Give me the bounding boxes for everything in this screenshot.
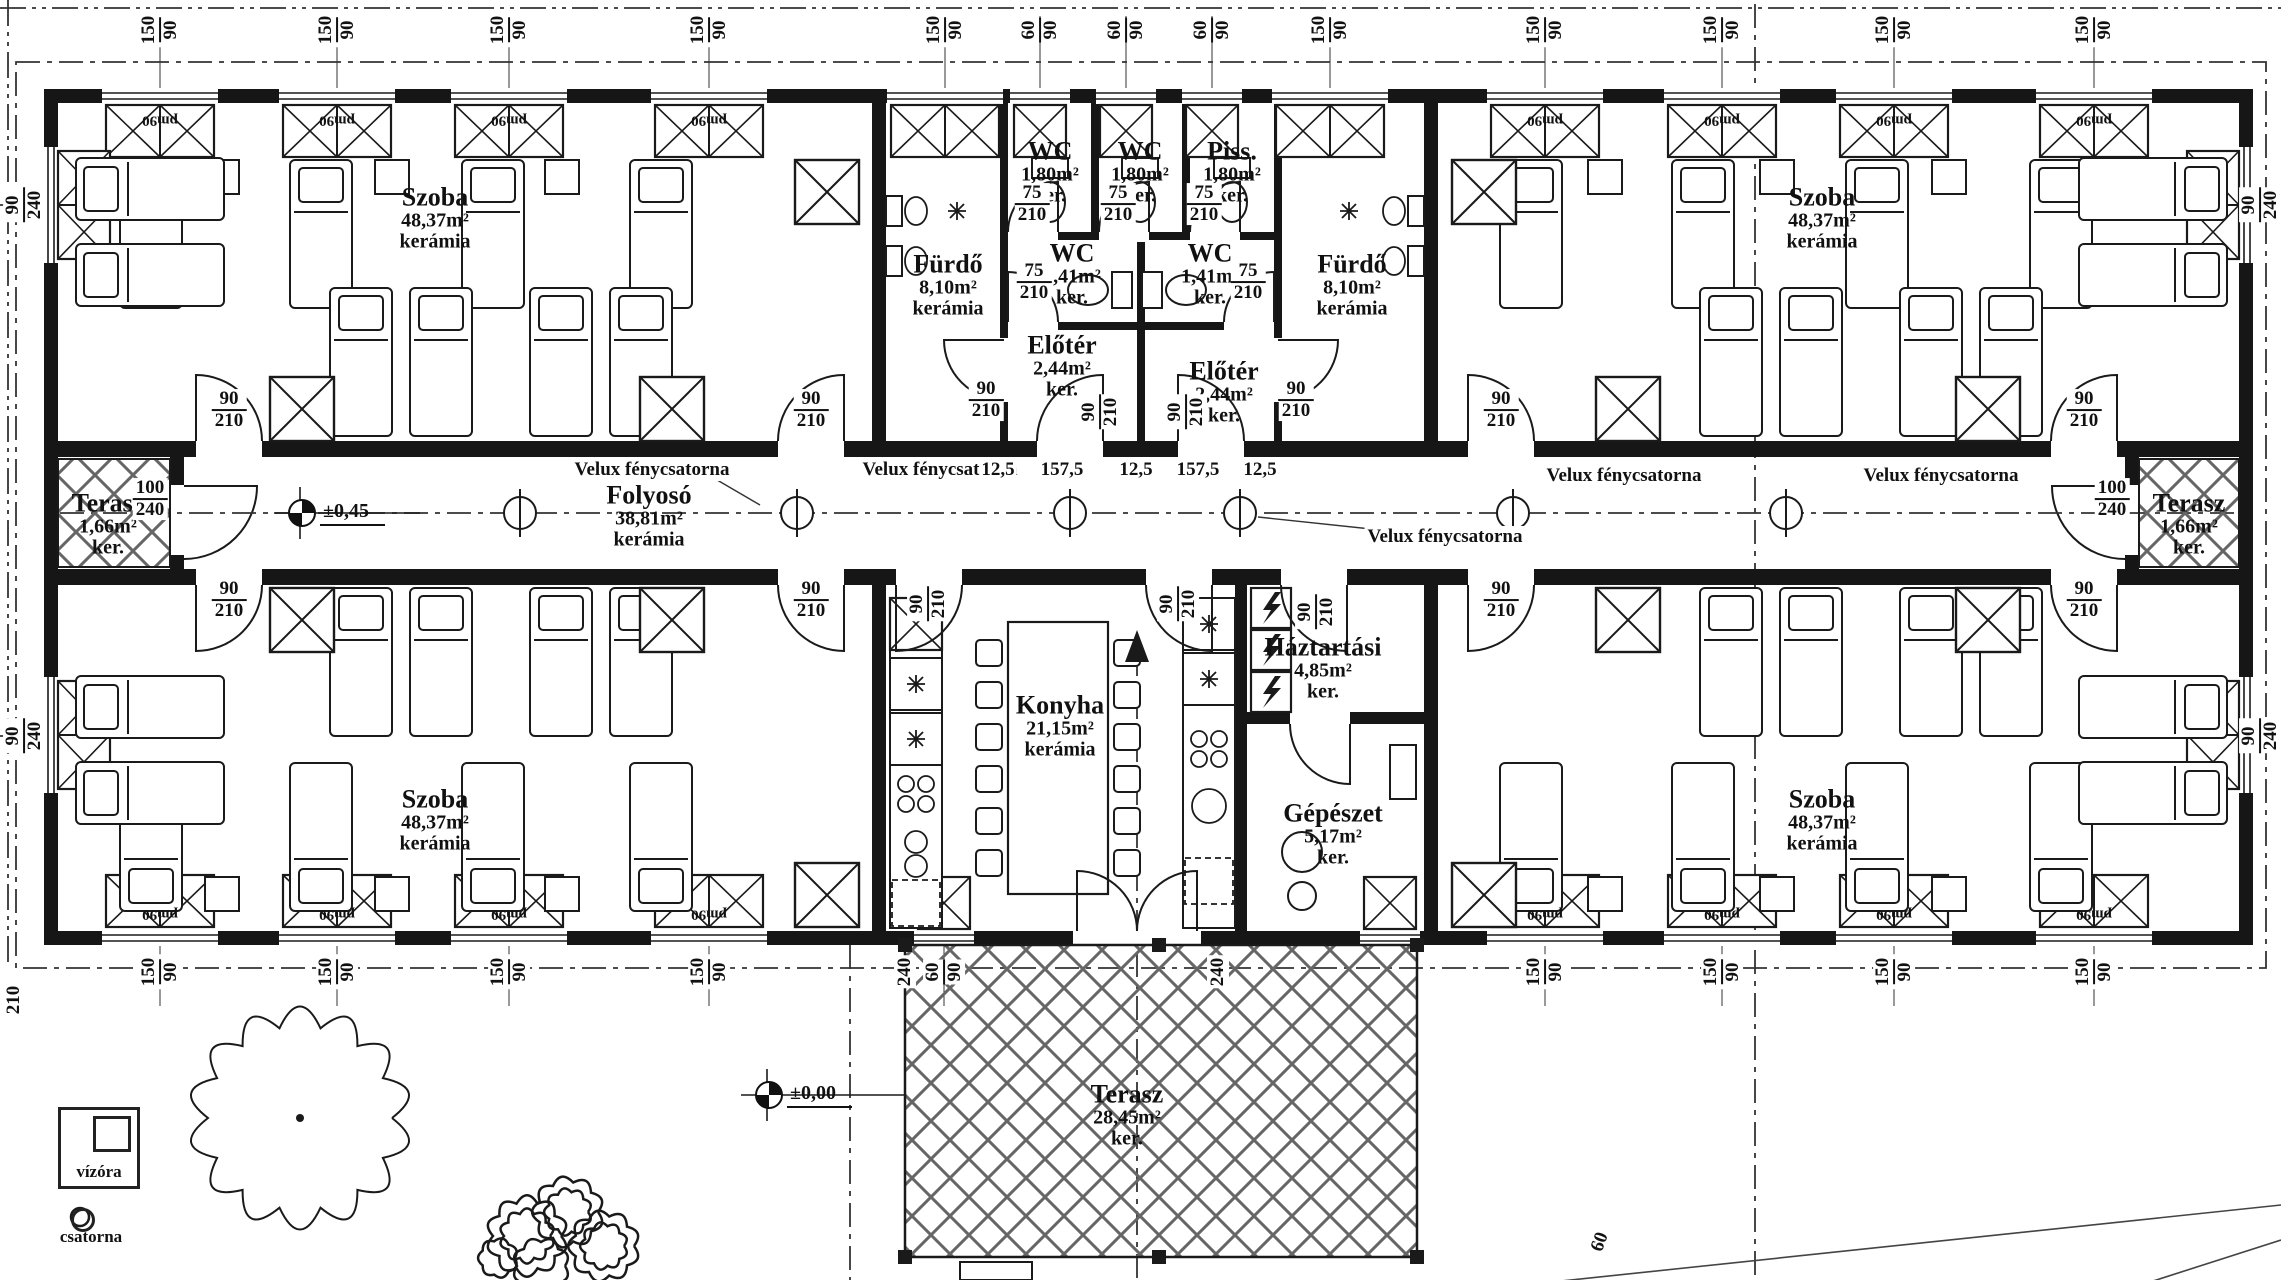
dimension-pair: 90 210 [2067,389,2102,431]
water-meter-inner-box [93,1116,131,1152]
dimension-pair-top: 100 [133,478,168,498]
room-name: Fürdő [1316,250,1387,277]
dimension-pair-top: 150 [1524,955,1544,990]
room-name: Terasz [1091,1080,1164,1107]
window-tag: pm90 [1527,906,1563,923]
dimension-pair-top: 90 [2072,579,2097,599]
dimension-pair: 150 90 [924,13,966,48]
dimension-pair-top: 150 [1701,955,1721,990]
dimension-pair-top: 90 [907,592,927,617]
room-label: Fürdő 8,10m² kerámia [1316,250,1387,319]
window-tag: pm90 [1527,112,1563,129]
dimension-label: 12,5 [1241,459,1278,481]
kitchen-furniture [890,598,1235,928]
window-tag: pm90 [1876,906,1912,923]
water-meter-label: vízóra [76,1162,121,1182]
vegetation [71,1006,638,1280]
room-finish: ker. [1265,682,1382,703]
window-tag: pm90 [1704,906,1740,923]
room-area: 1,66m² [2153,517,2226,538]
dimension-pair-top: 60 [1105,18,1125,43]
window-tag: pm90 [491,906,527,923]
dimension-pair-bottom: 90 [1125,18,1147,43]
room-area: 28,45m² [1091,1108,1164,1129]
room-label: Szoba 48,37m² kerámia [399,183,470,252]
level-marker: ±0,00 [755,1081,852,1109]
dimension-label: 12,5 [1117,459,1154,481]
dimension-pair-top: 90 [3,193,23,218]
room-label: Konyha 21,15m² kerámia [1016,691,1104,760]
dimension-pair-top: 90 [2239,193,2259,218]
site-boundary [1495,1205,2281,1280]
dimension-pair-top: 75 [1022,261,1047,281]
level-value: ±0,00 [787,1082,852,1108]
dimension-pair-top: 150 [488,13,508,48]
dimension-pair: 90 210 [794,389,829,431]
room-label: Szoba 48,37m² kerámia [399,785,470,854]
room-name: Előtér [1189,357,1258,384]
dimension-pair-top: 90 [217,389,242,409]
room-finish: kerámia [912,299,983,320]
room-name: Piss. [1203,137,1261,164]
dimension-pair-top: 100 [2095,478,2130,498]
room-name: Gépészet [1283,799,1383,826]
dimension-pair-bottom: 90 [1893,960,1915,985]
dimension-pair-bottom: 210 [1231,281,1266,303]
dimension-pair: 150 90 [1309,13,1351,48]
room-area: 5,17m² [1283,827,1383,848]
dimension-pair-top: 150 [688,955,708,990]
room-name: Konyha [1016,691,1104,718]
dimension-pair: 100 240 [2095,478,2130,520]
room-name: WC [1043,239,1101,266]
dimension-pair-top: 90 [1079,400,1099,425]
dimension-pair: 150 90 [488,13,530,48]
dimension-pair: 150 90 [316,955,358,990]
dimension-pair: 90 210 [794,579,829,621]
dimension-pair-bottom: 210 [1101,203,1136,225]
dimension-pair: 75 210 [1015,183,1050,225]
dimension-pair-bottom: 90 [1329,18,1351,43]
room-label: Terasz 1,66m² ker. [2153,489,2226,558]
room-name: Fürdő [912,250,983,277]
dimension-pair: 90 210 [2067,579,2102,621]
dimension-pair: 90 240 [3,188,45,223]
dimension-pair: 60 90 [1019,18,1061,43]
dimension-pair-bottom: 90 [708,18,730,43]
dimension-pair: 150 90 [316,13,358,48]
dimension-pair-bottom: 90 [2093,18,2115,43]
dimension-pair-top: 150 [2073,13,2093,48]
dimension-pair-top: 150 [688,13,708,48]
dimension-pair-top: 75 [1106,183,1131,203]
room-finish: ker. [72,538,145,559]
window-tag: pm90 [142,906,178,923]
room-finish: ker. [2153,538,2226,559]
dimension-pair-top: 60 [923,960,943,985]
room-area: 8,10m² [1316,278,1387,299]
dimension-pair-top: 150 [1309,13,1329,48]
dimension-pair-bottom: 240 [23,719,45,754]
dimension-pair: 90 210 [1279,379,1314,421]
room-area: 8,10m² [912,278,983,299]
dimension-pair-bottom: 210 [1099,395,1121,430]
room-finish: kerámia [606,530,691,551]
window-tag: pm90 [142,112,178,129]
dimension-pair-bottom: 210 [2067,409,2102,431]
room-name: Folyosó [606,481,691,508]
room-name: Terasz [2153,489,2226,516]
dimension-pair-bottom: 210 [1187,203,1222,225]
dimension-pair-top: 150 [1873,13,1893,48]
room-area: 38,81m² [606,509,691,530]
dimension-label: 12,5 [979,459,1016,481]
room-area: 2,44m² [1027,359,1096,380]
room-finish: kerámia [1016,740,1104,761]
dimension-pair-top: 150 [1701,13,1721,48]
velux-label: Velux fénycsatorna [1544,465,1705,487]
dimension-pair-bottom: 210 [1017,281,1052,303]
dimension-pair-top: 90 [799,389,824,409]
dimension-pair: 90 210 [1079,395,1121,430]
room-label: Szoba 48,37m² kerámia [1786,785,1857,854]
dimension-pair-top: 90 [1295,600,1315,625]
water-meter-symbol: vízóra [58,1107,140,1189]
room-area: 48,37m² [399,211,470,232]
room-label: Előtér 2,44m² ker. [1027,331,1096,400]
velux-label: Velux fénycsatorna [572,459,733,481]
dimension-pair-top: 90 [2072,389,2097,409]
room-finish: kerámia [1786,834,1857,855]
dimension-pair: 90 240 [2239,719,2281,754]
room-finish: ker. [1091,1129,1164,1150]
dimension-pair: 150 90 [1701,955,1743,990]
dimension-pair: 75 210 [1101,183,1136,225]
sewer-label: csatorna [60,1227,122,1247]
room-label: Terasz 28,45m² ker. [1091,1080,1164,1149]
dimension-pair-top: 150 [139,955,159,990]
floorplan-canvas: Szoba 48,37m² kerámia Szoba 48,37m² kerá… [0,0,2281,1280]
dimension-pair-bottom: 240 [2095,498,2130,520]
dimension-pair: 90 210 [1165,395,1207,430]
dimension-pair-bottom: 90 [1721,960,1743,985]
dimension-pair: 75 210 [1017,261,1052,303]
dimension-pair-top: 75 [1236,261,1261,281]
dimension-pair-bottom: 210 [969,399,1004,421]
dimension-label: 157,5 [1175,459,1222,481]
dimension-pair-bottom: 210 [2067,599,2102,621]
room-area: 48,37m² [1786,211,1857,232]
dimension-pair-top: 90 [799,579,824,599]
window-tag: pm90 [319,112,355,129]
room-name: Szoba [1786,785,1857,812]
dimension-pair: 150 90 [139,955,181,990]
dimension-pair: 150 90 [1524,13,1566,48]
dimension-pair: 90 210 [1295,595,1337,630]
dimension-pair: 90 210 [969,379,1004,421]
dimension-pair-bottom: 210 [1484,409,1519,431]
dimension-pair: 150 90 [1701,13,1743,48]
dimension-pair-bottom: 90 [336,960,358,985]
dimension-pair-top: 60 [1019,18,1039,43]
dimension-pair-top: 150 [316,13,336,48]
dimension-label: 240 [894,956,916,989]
dimension-pair-bottom: 90 [1721,18,1743,43]
dimension-label: 240 [1207,956,1229,989]
room-name: Előtér [1027,331,1096,358]
window-tag: pm90 [1876,112,1912,129]
dimension-pair-bottom: 90 [159,960,181,985]
dimension-pair-top: 90 [1157,592,1177,617]
dimension-pair-bottom: 90 [1544,18,1566,43]
room-finish: kerámia [1786,232,1857,253]
room-label: Háztartási 4,85m² ker. [1265,633,1382,702]
dimension-pair-bottom: 210 [1484,599,1519,621]
room-label: WC 1,41m² ker. [1043,239,1101,308]
dimension-pair: 90 210 [212,389,247,431]
room-finish: ker. [1043,288,1101,309]
room-area: 1,41m² [1043,267,1101,288]
dimension-pair: 90 210 [1484,389,1519,431]
dimension-pair-top: 90 [217,579,242,599]
dimension-pair: 90 240 [3,719,45,754]
dimension-pair: 60 90 [923,960,965,985]
dimension-pair-top: 90 [2239,724,2259,749]
dimension-pair: 150 90 [139,13,181,48]
dimension-pair-bottom: 90 [1211,18,1233,43]
dimension-pair-top: 90 [3,724,23,749]
room-name: WC [1021,137,1079,164]
dimension-pair-bottom: 90 [708,960,730,985]
dimension-pair-top: 150 [488,955,508,990]
dimension-pair-top: 60 [1191,18,1211,43]
window-tag: pm90 [2076,906,2112,923]
window-tag: pm90 [319,906,355,923]
dimension-pair: 60 90 [1191,18,1233,43]
dimension-pair: 60 90 [1105,18,1147,43]
room-name: Háztartási [1265,633,1382,660]
dimension-pair: 150 90 [688,13,730,48]
dimension-pair: 100 240 [133,478,168,520]
velux-label: Velux fénycsatorna [1365,526,1526,548]
room-area: 21,15m² [1016,719,1104,740]
velux-label: Velux fénycsatorna [1861,465,2022,487]
dimension-pair-bottom: 210 [1185,395,1207,430]
dimension-pair-bottom: 240 [133,498,168,520]
room-finish: ker. [1283,848,1383,869]
dimension-pair-top: 75 [1020,183,1045,203]
dimension-pair-top: 90 [1489,579,1514,599]
window-tag: pm90 [491,112,527,129]
dimension-pair-top: 150 [1524,13,1544,48]
dimension-pair-top: 150 [2073,955,2093,990]
room-finish: kerámia [399,834,470,855]
dimension-pair-bottom: 210 [1279,399,1314,421]
dimension-pair-bottom: 90 [944,18,966,43]
dimension-pair-bottom: 210 [1015,203,1050,225]
room-name: WC [1111,137,1169,164]
dimension-pair-top: 90 [974,379,999,399]
dimension-pair-bottom: 240 [2259,188,2281,223]
window-tag: pm90 [1704,112,1740,129]
room-area: 48,37m² [1786,813,1857,834]
window-tag: pm90 [691,906,727,923]
room-label: Gépészet 5,17m² ker. [1283,799,1383,868]
dimension-pair-top: 75 [1192,183,1217,203]
room-label: Szoba 48,37m² kerámia [1786,183,1857,252]
dimension-pair-bottom: 240 [23,188,45,223]
window-tag: pm90 [2076,112,2112,129]
dimension-pair-bottom: 90 [508,960,530,985]
dimension-pair-bottom: 210 [212,599,247,621]
level-marker: ±0,45 [288,499,385,527]
level-marker-icon [755,1081,783,1109]
dimension-label: 210 [3,984,25,1017]
dimension-pair-bottom: 210 [1177,587,1199,622]
dimension-pair-top: 150 [924,13,944,48]
dimension-pair-top: 150 [316,955,336,990]
dimension-pair-bottom: 90 [508,18,530,43]
level-value: ±0,45 [320,500,385,526]
dimension-pair: 150 90 [688,955,730,990]
dimension-pair: 150 90 [2073,13,2115,48]
dimension-pair-bottom: 210 [212,409,247,431]
dimension-pair: 90 210 [1157,587,1199,622]
dimension-pair: 150 90 [2073,955,2115,990]
dimension-pair: 150 90 [1873,955,1915,990]
dimension-pair: 150 90 [1873,13,1915,48]
room-finish: kerámia [399,232,470,253]
dimension-pair-bottom: 90 [943,960,965,985]
room-name: Szoba [399,183,470,210]
room-name: Szoba [1786,183,1857,210]
room-area: 4,85m² [1265,661,1382,682]
dimension-pair-bottom: 210 [1315,595,1337,630]
dimension-pair-bottom: 210 [927,587,949,622]
dimension-pair-bottom: 90 [159,18,181,43]
dimension-pair-bottom: 90 [1039,18,1061,43]
dimension-pair-bottom: 210 [794,409,829,431]
dimension-pair: 150 90 [488,955,530,990]
dimension-pair-bottom: 90 [336,18,358,43]
dimension-pair: 90 210 [212,579,247,621]
room-label: Folyosó 38,81m² kerámia [606,481,691,550]
dimension-pair: 75 210 [1231,261,1266,303]
dimension-label: 157,5 [1039,459,1086,481]
dimension-pair-top: 90 [1165,400,1185,425]
dimension-pair-top: 90 [1489,389,1514,409]
room-finish: kerámia [1316,299,1387,320]
room-area: 48,37m² [399,813,470,834]
dimension-pair-bottom: 90 [1893,18,1915,43]
dimension-pair-bottom: 90 [2093,960,2115,985]
dimension-pair: 75 210 [1187,183,1222,225]
dimension-pair-bottom: 240 [2259,719,2281,754]
dimension-pair-top: 150 [139,13,159,48]
dimension-pair: 150 90 [1524,955,1566,990]
dimension-pair: 90 210 [1484,579,1519,621]
dimension-pair-top: 90 [1284,379,1309,399]
dimension-pair: 90 210 [907,587,949,622]
level-marker-icon [288,499,316,527]
dimension-pair: 90 240 [2239,188,2281,223]
dimension-pair-top: 150 [1873,955,1893,990]
dimension-pair-bottom: 90 [1544,960,1566,985]
window-tag: pm90 [691,112,727,129]
dimension-pair-bottom: 210 [794,599,829,621]
room-name: Szoba [399,785,470,812]
room-label: Fürdő 8,10m² kerámia [912,250,983,319]
